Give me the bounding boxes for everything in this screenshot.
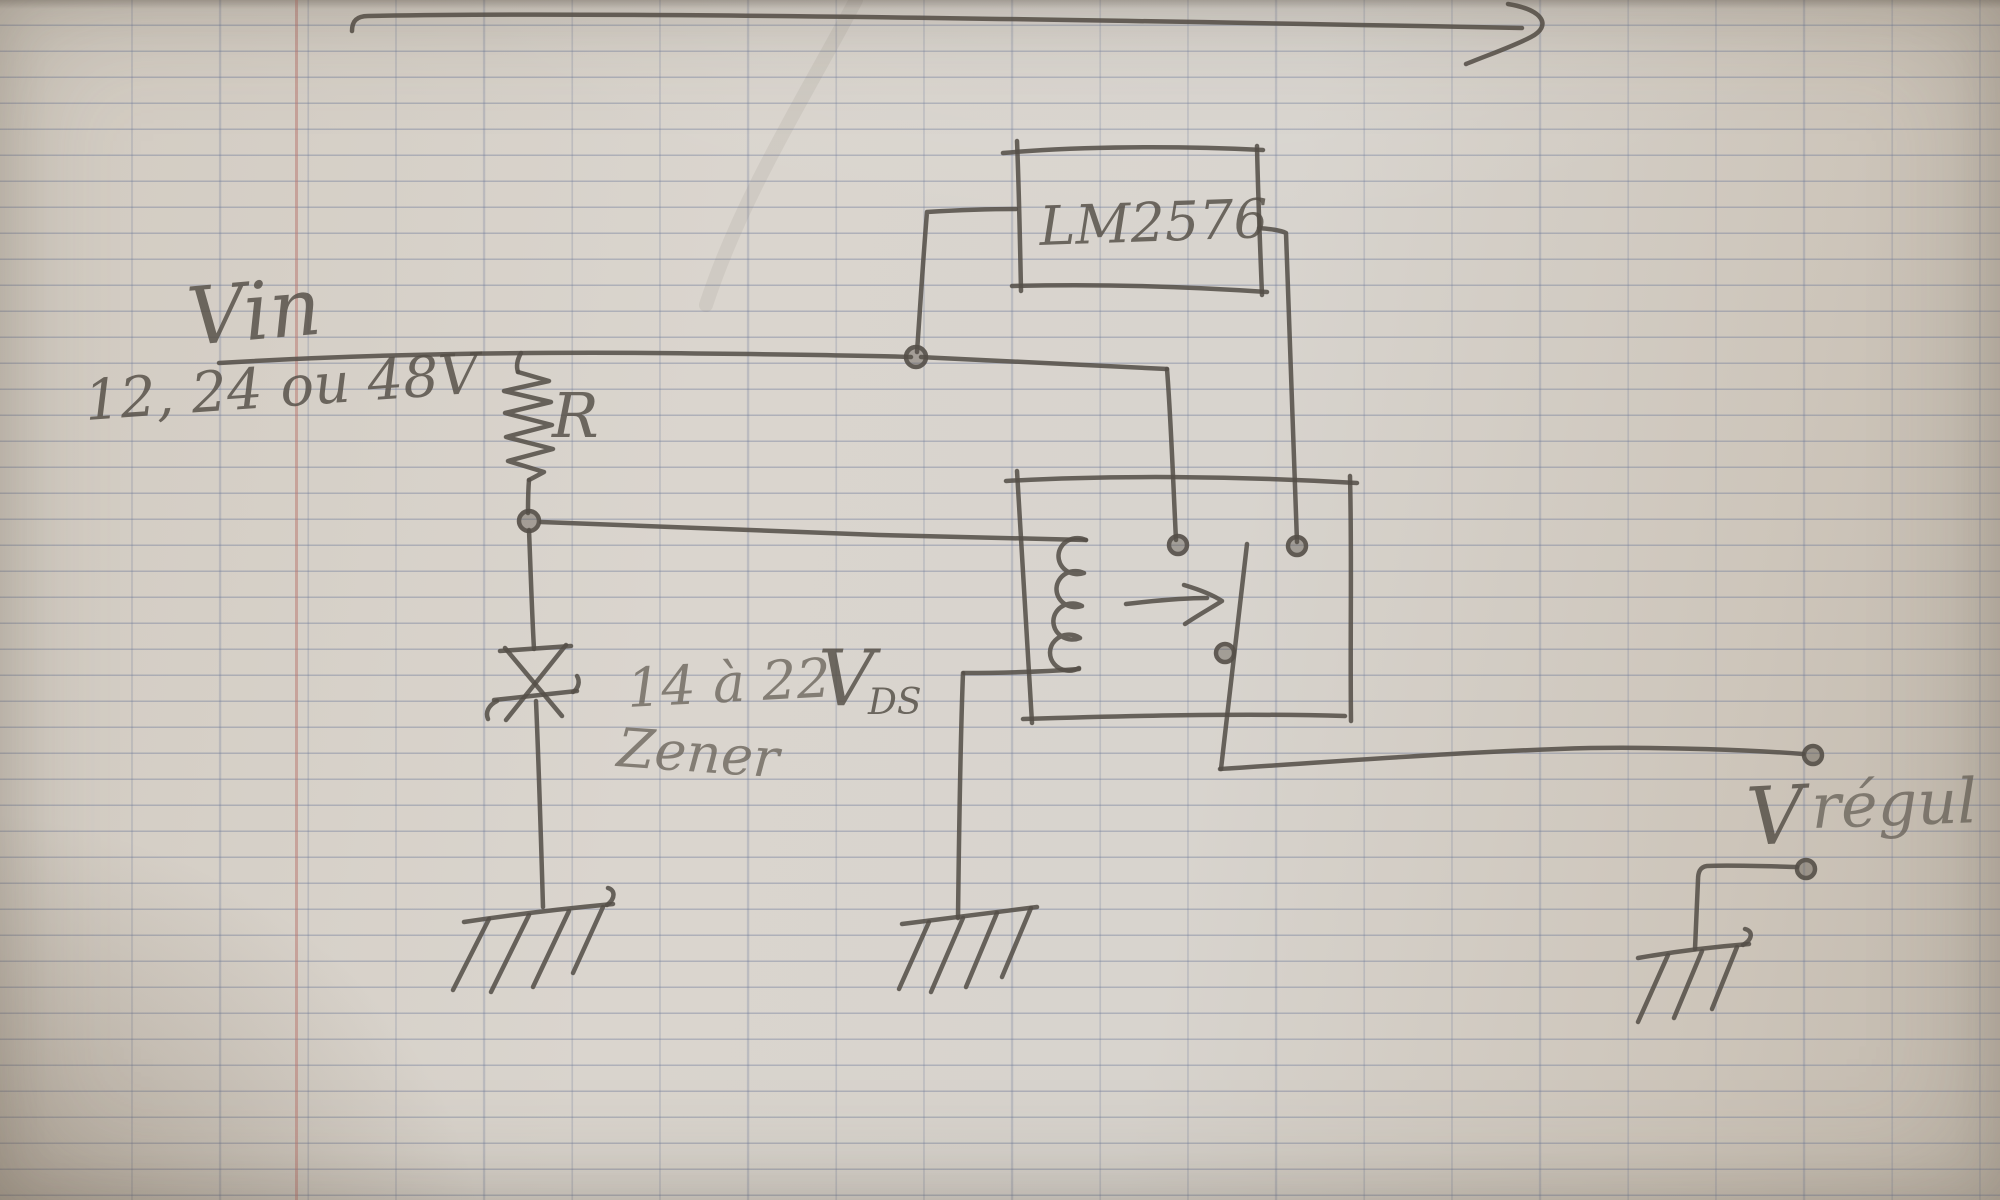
- zener-diode-symbol: [487, 530, 579, 907]
- drain-terminal-dot: [1169, 536, 1187, 554]
- top-arrow-wire: [352, 4, 1542, 64]
- vin-range-label: 12, 24 ou 48V: [82, 341, 486, 434]
- lm2576-output-wire: [1259, 228, 1297, 542]
- vout-ground-dot: [1797, 860, 1815, 878]
- lm2576-label: LM2576: [1037, 187, 1269, 258]
- vout-name-label: régul: [1810, 764, 1978, 843]
- paper-crease: [706, 0, 856, 305]
- zener-v-subscript: DS: [867, 682, 922, 723]
- ground-symbol-right: [1638, 860, 1815, 1022]
- gate-wire: [541, 522, 1086, 540]
- vout-v-label: V: [1744, 768, 1814, 864]
- zener-range-label: 14 à 22: [625, 646, 832, 720]
- zener-name-label: Zener: [613, 716, 784, 791]
- source-terminal-dot: [1216, 644, 1234, 662]
- resistor-symbol: [504, 353, 553, 513]
- gate-arrowhead-icon: [1184, 585, 1222, 624]
- vout-terminal-dot: [1804, 746, 1822, 764]
- transistor-symbol: [1126, 536, 1306, 769]
- lm-drive-terminal-dot: [1288, 537, 1306, 555]
- ground-symbol-left: [453, 888, 614, 992]
- lm2576-input-wire: [917, 209, 1016, 352]
- vin-label: Vin: [184, 260, 325, 364]
- resistor-label: R: [551, 379, 599, 452]
- circuit-schematic: LM2576 R: [0, 0, 2000, 1200]
- output-wire: [1220, 746, 1822, 769]
- gate-coil: [1050, 538, 1086, 671]
- gate-arrow-shaft: [1126, 598, 1207, 604]
- coil-return-wire: [964, 669, 1079, 673]
- arrowhead-icon: [1466, 4, 1542, 64]
